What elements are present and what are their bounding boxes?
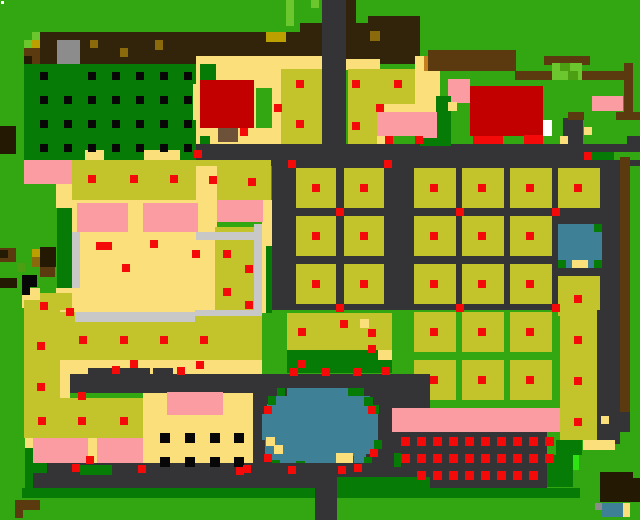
crop-dot-black (160, 120, 168, 128)
map-rect (22, 488, 580, 498)
crop-dot (312, 232, 320, 240)
crop-dot (430, 184, 438, 192)
crop-dot (456, 208, 464, 216)
crop-dot (385, 136, 393, 144)
crop-dot (296, 120, 304, 128)
crop-dot (430, 280, 438, 288)
map-rect (582, 71, 626, 80)
crop-dot-black (234, 433, 244, 443)
crop-dot (288, 466, 296, 474)
crop-dot (72, 464, 80, 472)
crop-dot (449, 437, 458, 446)
map-rect (311, 0, 319, 8)
crop-dot (340, 320, 348, 328)
map-rect (195, 310, 262, 316)
map-rect (266, 32, 286, 42)
crop-dot (481, 437, 490, 446)
map-rect (368, 16, 420, 32)
crop-dot (194, 150, 202, 158)
crop-dot (529, 454, 538, 463)
crop-dot-black (112, 72, 120, 80)
map-rect (558, 260, 566, 268)
map-rect (448, 102, 457, 111)
map-rect (72, 232, 80, 288)
map-rect (32, 32, 40, 40)
crop-dot-black (136, 120, 144, 128)
map-rect (568, 71, 578, 80)
crop-dot (160, 336, 168, 344)
map-rect (254, 224, 262, 314)
map-rect (60, 398, 143, 438)
crop-dot (38, 417, 46, 425)
crop-dot (336, 304, 344, 312)
map-rect (394, 453, 401, 467)
map-rect (24, 64, 196, 160)
map-rect (167, 392, 223, 415)
crop-dot (66, 308, 74, 316)
crop-dot (192, 250, 200, 258)
map-rect (274, 445, 283, 454)
crop-dot-black (184, 72, 192, 80)
crop-dot-black (88, 144, 96, 152)
crop-dot (478, 376, 486, 384)
map-rect (524, 135, 543, 144)
crop-dot (497, 471, 506, 480)
crop-dot (545, 454, 554, 463)
crop-dot (394, 80, 402, 88)
crop-dot (223, 250, 231, 258)
crop-dot (513, 437, 522, 446)
crop-dot (177, 367, 185, 375)
crop-dot (196, 361, 204, 369)
map-rect (32, 40, 40, 48)
crop-dot (574, 295, 582, 303)
map-rect (15, 510, 23, 518)
crop-dot (552, 208, 560, 216)
crop-dot (526, 280, 534, 288)
map-rect (378, 350, 392, 360)
map-rect (348, 388, 364, 396)
map-rect (268, 396, 276, 405)
map-rect (33, 463, 47, 473)
map-rect (277, 388, 285, 396)
map-rect (143, 203, 198, 232)
crop-dot (526, 376, 534, 384)
crop-dot (138, 465, 146, 473)
crop-dot (288, 160, 296, 168)
crop-dot (130, 175, 138, 183)
crop-dot (360, 184, 368, 192)
crop-dot (478, 184, 486, 192)
crop-dot-black (40, 144, 48, 152)
crop-dot (417, 454, 426, 463)
map-rect (600, 472, 633, 502)
crop-dot (264, 454, 272, 462)
crop-dot (478, 232, 486, 240)
crop-dot-black (160, 72, 168, 80)
crop-dot (552, 304, 560, 312)
crop-dot-black (160, 96, 168, 104)
map-rect (315, 488, 337, 520)
crop-dot (526, 184, 534, 192)
map-rect (0, 250, 8, 258)
map-rect (0, 126, 16, 154)
crop-dot (529, 437, 538, 446)
crop-dot (360, 280, 368, 288)
crop-dot (336, 208, 344, 216)
map-rect (70, 374, 430, 393)
crop-dot (449, 454, 458, 463)
crop-dot-black (88, 120, 96, 128)
map-rect (620, 157, 630, 412)
map-rect (77, 203, 128, 232)
crop-dot (382, 367, 390, 375)
map-rect (448, 79, 470, 103)
map-rect (57, 208, 72, 288)
crop-dot (430, 328, 438, 336)
crop-dot (433, 471, 442, 480)
map-rect (632, 478, 640, 502)
crop-dot (513, 454, 522, 463)
map-rect (377, 136, 385, 144)
map-rect (620, 412, 630, 432)
crop-dot (37, 342, 45, 350)
crop-dot-black (40, 120, 48, 128)
crop-dot (248, 178, 256, 186)
crop-dot (353, 368, 361, 376)
map-rect (15, 500, 40, 510)
map-rect (420, 138, 451, 146)
crop-dot (478, 328, 486, 336)
crop-dot (245, 265, 253, 273)
crop-dot (130, 360, 138, 368)
crop-dot (584, 152, 592, 160)
crop-dot (526, 328, 534, 336)
map-rect (155, 40, 163, 50)
crop-dot-black (185, 457, 195, 467)
map-rect (543, 120, 552, 136)
map-rect (57, 40, 80, 64)
crop-dot (96, 242, 104, 250)
map-rect (568, 112, 584, 120)
crop-dot-black (64, 120, 72, 128)
crop-dot (456, 304, 464, 312)
crop-dot (120, 336, 128, 344)
crop-dot (354, 464, 362, 472)
map-rect (217, 200, 263, 222)
map-rect (583, 440, 615, 450)
crop-dot (86, 456, 94, 464)
map-rect (97, 438, 143, 463)
crop-dot-black (160, 144, 168, 152)
crop-dot (120, 417, 128, 425)
crop-dot (150, 240, 158, 248)
map-rect (1, 1, 4, 4)
crop-dot (465, 454, 474, 463)
map-rect (22, 275, 37, 287)
crop-dot-black (64, 96, 72, 104)
crop-dot (200, 336, 208, 344)
crop-dot (88, 175, 96, 183)
crop-dot (433, 437, 442, 446)
crop-dot (170, 175, 178, 183)
crop-dot (497, 454, 506, 463)
crop-dot-black (112, 144, 120, 152)
crop-dot (449, 471, 458, 480)
crop-dot-black (184, 96, 192, 104)
map-rect (623, 503, 630, 517)
crop-dot (465, 437, 474, 446)
map-rect (560, 63, 570, 71)
map-rect (256, 88, 272, 128)
map-rect (594, 224, 602, 232)
crop-dot (478, 280, 486, 288)
crop-dot (433, 454, 442, 463)
crop-dot-black (136, 72, 144, 80)
map-rect (601, 416, 609, 424)
map-rect (200, 64, 216, 80)
crop-dot (274, 104, 282, 112)
map-rect (322, 0, 346, 166)
map-rect (346, 0, 356, 23)
crop-dot (296, 80, 304, 88)
crop-dot (545, 437, 554, 446)
crop-dot (526, 232, 534, 240)
crop-dot (298, 360, 306, 368)
map-rect (200, 80, 254, 128)
map-rect (90, 40, 98, 48)
map-rect (473, 136, 503, 144)
crop-dot-black (185, 433, 195, 443)
crop-dot (401, 437, 410, 446)
crop-dot (376, 104, 384, 112)
crop-dot-black (184, 120, 192, 128)
map-rect (32, 249, 40, 257)
crop-dot (415, 136, 423, 144)
crop-dot-black (184, 144, 192, 152)
map-rect (24, 40, 32, 48)
crop-dot (574, 184, 582, 192)
map-rect (556, 440, 582, 455)
crop-dot (368, 329, 376, 337)
crop-dot (322, 368, 330, 376)
map-rect (262, 414, 378, 440)
crop-dot (264, 406, 272, 414)
map-rect (32, 257, 40, 267)
crop-dot (338, 466, 346, 474)
map-rect (75, 312, 195, 322)
crop-dot (417, 471, 426, 480)
crop-dot (574, 377, 582, 385)
crop-dot (465, 471, 474, 480)
map-rect (592, 96, 623, 111)
map-rect (584, 127, 592, 135)
crop-dot (78, 392, 86, 400)
map-rect (573, 455, 579, 470)
crop-dot (417, 437, 426, 446)
crop-dot (290, 368, 298, 376)
crop-dot-black (160, 457, 170, 467)
crop-dot (360, 319, 369, 328)
map-rect (25, 438, 33, 448)
map-rect (40, 247, 56, 267)
crop-dot (513, 471, 522, 480)
crop-dot-black (136, 96, 144, 104)
map-rect (595, 503, 602, 510)
map-rect (17, 263, 25, 272)
crop-dot (360, 232, 368, 240)
map-rect (120, 48, 128, 57)
map-rect (40, 267, 55, 277)
crop-dot-black (160, 433, 170, 443)
crop-dot (209, 176, 217, 184)
crop-dot (574, 418, 582, 426)
crop-dot (368, 345, 376, 353)
crop-dot (37, 383, 45, 391)
map-rect (428, 50, 516, 71)
map-rect (80, 465, 112, 475)
crop-dot (112, 366, 120, 374)
map-rect (515, 71, 552, 80)
map-rect (336, 453, 353, 463)
map-rect (0, 278, 17, 288)
map-rect (602, 503, 623, 517)
crop-dot (245, 301, 253, 309)
map-rect (594, 260, 602, 268)
map-rect (572, 260, 588, 268)
map-rect (56, 184, 72, 208)
crop-dot (122, 264, 130, 272)
crop-dot-black (112, 96, 120, 104)
map-rect (470, 86, 543, 136)
crop-dot (574, 336, 582, 344)
crop-dot-black (64, 144, 72, 152)
crop-dot (481, 454, 490, 463)
map-rect (616, 112, 640, 120)
crop-dot (481, 471, 490, 480)
crop-dot (79, 336, 87, 344)
crop-dot (223, 288, 231, 296)
map-rect (286, 0, 294, 26)
map-rect (22, 287, 30, 295)
map-rect (33, 438, 88, 463)
crop-dot (312, 184, 320, 192)
crop-dot (384, 160, 392, 168)
crop-dot (430, 232, 438, 240)
crop-dot (78, 417, 86, 425)
crop-dot-black (210, 433, 220, 443)
crop-dot (430, 376, 438, 384)
map-rect (627, 136, 640, 144)
crop-dot (401, 454, 410, 463)
map-rect (560, 136, 568, 144)
crop-dot (104, 242, 112, 250)
map-rect (592, 152, 614, 160)
crop-dot-black (40, 96, 48, 104)
map-rect (218, 128, 238, 142)
map-rect (300, 23, 322, 32)
crop-dot-black (136, 144, 144, 152)
crop-dot (352, 80, 360, 88)
crop-dot (298, 328, 306, 336)
map-rect (392, 408, 560, 432)
crop-dot-black (112, 120, 120, 128)
crop-dot (40, 302, 48, 310)
crop-dot-black (40, 72, 48, 80)
game-world-map[interactable] (0, 0, 640, 520)
map-rect (374, 440, 382, 449)
map-rect (60, 380, 70, 398)
crop-dot-black (88, 96, 96, 104)
crop-dot (497, 437, 506, 446)
crop-dot-black (210, 457, 220, 467)
crop-dot (529, 471, 538, 480)
crop-dot-black (88, 72, 96, 80)
crop-dot (312, 280, 320, 288)
map-rect (370, 31, 380, 41)
crop-dot (370, 449, 378, 457)
map-rect (24, 160, 72, 184)
crop-dot (352, 122, 360, 130)
map-rect (196, 232, 254, 240)
crop-dot (243, 465, 251, 473)
crop-dot (240, 128, 248, 136)
map-rect (24, 56, 32, 64)
crop-dot (368, 406, 376, 414)
